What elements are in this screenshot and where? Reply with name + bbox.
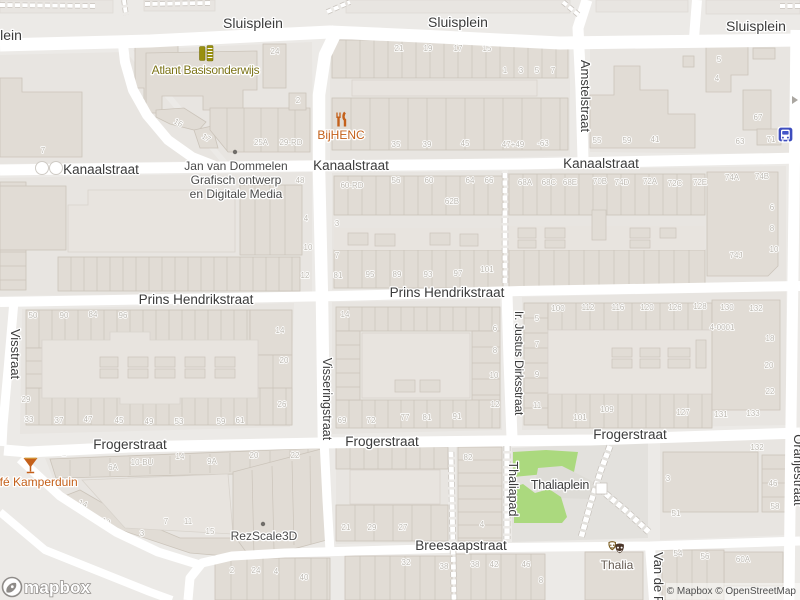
svg-text:7: 7	[41, 146, 46, 155]
svg-text:Visseringstraat: Visseringstraat	[320, 358, 334, 441]
svg-text:101: 101	[573, 413, 587, 422]
svg-text:19: 19	[424, 44, 433, 53]
svg-text:26: 26	[278, 400, 287, 409]
svg-text:BijHENC: BijHENC	[317, 128, 365, 142]
svg-text:71: 71	[767, 135, 776, 144]
svg-text:130: 130	[720, 303, 734, 312]
svg-text:Sluisplein: Sluisplein	[223, 15, 283, 31]
svg-text:47+49: 47+49	[502, 140, 525, 149]
svg-text:59: 59	[623, 136, 632, 145]
svg-text:6A: 6A	[108, 463, 118, 472]
svg-text:68C: 68C	[542, 178, 557, 187]
svg-text:Kanaalstraat: Kanaalstraat	[63, 162, 139, 177]
svg-text:74J: 74J	[730, 251, 743, 260]
svg-text:48: 48	[296, 176, 305, 185]
svg-text:127: 127	[676, 408, 690, 417]
svg-text:32: 32	[402, 558, 411, 567]
svg-text:10: 10	[490, 371, 499, 380]
svg-text:8: 8	[539, 576, 544, 585]
svg-text:133: 133	[746, 409, 760, 418]
svg-text:Thalia: Thalia	[601, 558, 634, 572]
svg-text:22: 22	[766, 387, 775, 396]
svg-text:41: 41	[651, 135, 660, 144]
svg-text:3: 3	[519, 66, 524, 75]
svg-text:mapbox: mapbox	[24, 578, 91, 597]
svg-text:56: 56	[701, 552, 710, 561]
svg-text:Jan van Dommelen: Jan van Dommelen	[184, 159, 287, 173]
svg-text:RezScale3D: RezScale3D	[231, 529, 298, 543]
svg-text:72A: 72A	[643, 177, 658, 186]
svg-text:131: 131	[714, 410, 728, 419]
svg-text:8: 8	[770, 224, 775, 233]
svg-text:82: 82	[464, 453, 473, 462]
svg-text:Sluisplein: Sluisplein	[0, 27, 22, 43]
svg-text:4: 4	[274, 567, 279, 576]
svg-text:66: 66	[485, 176, 494, 185]
svg-text:Prins Hendrikstraat: Prins Hendrikstraat	[139, 292, 254, 307]
svg-text:Kanaalstraat: Kanaalstraat	[563, 156, 639, 171]
svg-text:45: 45	[461, 139, 470, 148]
svg-text:11: 11	[533, 401, 542, 410]
svg-text:24: 24	[271, 47, 280, 56]
svg-text:33: 33	[25, 415, 34, 424]
svg-text:47: 47	[84, 415, 93, 424]
svg-text:3: 3	[140, 529, 145, 538]
svg-text:89: 89	[393, 270, 402, 279]
svg-text:72: 72	[367, 416, 376, 425]
svg-text:20: 20	[280, 356, 289, 365]
svg-text:Sluisplein: Sluisplein	[428, 14, 488, 30]
svg-text:1: 1	[503, 66, 508, 75]
svg-text:12: 12	[491, 400, 500, 409]
svg-text:132: 132	[750, 443, 764, 452]
svg-text:77: 77	[401, 413, 410, 422]
svg-text:7: 7	[551, 66, 556, 75]
svg-text:3: 3	[666, 474, 671, 483]
svg-text:29: 29	[22, 395, 31, 404]
svg-text:74D: 74D	[615, 178, 630, 187]
svg-text:6: 6	[493, 324, 498, 333]
svg-text:132: 132	[749, 304, 763, 313]
svg-text:20: 20	[765, 361, 774, 370]
svg-text:54: 54	[674, 549, 683, 558]
svg-text:29: 29	[368, 523, 377, 532]
svg-text:4: 4	[304, 214, 309, 223]
svg-text:62B: 62B	[445, 197, 459, 206]
svg-text:12: 12	[301, 271, 310, 280]
svg-text:7: 7	[535, 340, 540, 349]
svg-text:53: 53	[175, 417, 184, 426]
svg-text:Grafisch ontwerp: Grafisch ontwerp	[191, 173, 282, 187]
svg-text:Café Kamperduin: Café Kamperduin	[0, 475, 78, 489]
svg-text:-63: -63	[537, 139, 549, 148]
svg-text:21: 21	[395, 44, 404, 53]
svg-text:120: 120	[640, 303, 654, 312]
svg-text:21: 21	[342, 523, 351, 532]
svg-text:68A: 68A	[518, 178, 533, 187]
svg-text:60: 60	[425, 176, 434, 185]
svg-text:Thaliaplein: Thaliaplein	[531, 478, 590, 492]
svg-text:7: 7	[164, 517, 169, 526]
svg-text:17: 17	[454, 44, 463, 53]
svg-text:Breesaapstraat: Breesaapstraat	[415, 538, 507, 553]
svg-text:128: 128	[693, 302, 707, 311]
svg-text:64: 64	[466, 176, 475, 185]
svg-text:81: 81	[334, 271, 343, 280]
svg-text:74B: 74B	[755, 172, 769, 181]
svg-text:20: 20	[250, 451, 259, 460]
svg-text:35: 35	[392, 140, 401, 149]
svg-text:95: 95	[366, 270, 375, 279]
svg-text:Van de Polder: Van de Polder	[651, 552, 666, 600]
svg-text:Ir. Justus Dirksstraat: Ir. Justus Dirksstraat	[512, 311, 526, 416]
svg-text:46: 46	[522, 560, 531, 569]
svg-text:9: 9	[535, 370, 540, 379]
svg-text:50: 50	[29, 311, 38, 320]
svg-text:Visstraat: Visstraat	[8, 329, 23, 380]
svg-text:96: 96	[119, 311, 128, 320]
svg-text:Oranjestraat: Oranjestraat	[791, 434, 800, 506]
svg-text:en Digitale Media: en Digitale Media	[190, 187, 283, 201]
svg-text:Frogerstraat: Frogerstraat	[345, 434, 419, 449]
svg-text:8: 8	[493, 346, 498, 355]
svg-text:39: 39	[423, 140, 432, 149]
svg-text:67: 67	[754, 113, 763, 122]
svg-text:72E: 72E	[693, 178, 707, 187]
svg-text:2: 2	[296, 96, 301, 105]
svg-text:46: 46	[769, 479, 778, 488]
svg-text:93: 93	[424, 270, 433, 279]
svg-text:5: 5	[535, 66, 540, 75]
svg-text:42: 42	[490, 560, 499, 569]
svg-text:Thaliapad: Thaliapad	[506, 462, 520, 517]
svg-text:112: 112	[582, 303, 595, 312]
svg-text:14: 14	[176, 452, 185, 461]
svg-text:72C: 72C	[668, 179, 683, 188]
svg-text:109: 109	[600, 405, 614, 414]
svg-text:69: 69	[338, 416, 347, 425]
svg-text:49: 49	[145, 417, 154, 426]
svg-text:60-RD: 60-RD	[340, 181, 363, 190]
svg-text:4: 4	[480, 520, 485, 529]
svg-text:37: 37	[55, 416, 64, 425]
svg-text:29-RD: 29-RD	[279, 138, 302, 147]
svg-text:Atlant Basisonderwijs: Atlant Basisonderwijs	[152, 63, 260, 77]
svg-text:Frogerstraat: Frogerstraat	[593, 427, 667, 442]
svg-text:7: 7	[335, 251, 340, 260]
svg-text:Kanaalstraat: Kanaalstraat	[313, 158, 389, 173]
svg-text:10: 10	[304, 243, 313, 252]
svg-text:45: 45	[115, 416, 124, 425]
svg-text:22: 22	[291, 451, 300, 460]
svg-text:100: 100	[551, 304, 565, 313]
svg-text:74A: 74A	[725, 173, 740, 182]
svg-text:4-0001: 4-0001	[710, 323, 735, 332]
svg-text:55: 55	[593, 136, 602, 145]
svg-text:51: 51	[672, 509, 681, 518]
svg-text:4: 4	[715, 74, 720, 83]
svg-text:91: 91	[453, 412, 462, 421]
svg-text:© Mapbox © OpenStreetMap: © Mapbox © OpenStreetMap	[667, 586, 797, 597]
svg-text:97: 97	[454, 269, 463, 278]
svg-text:90: 90	[60, 311, 69, 320]
svg-text:Frogerstraat: Frogerstraat	[93, 437, 167, 452]
svg-text:25A: 25A	[254, 138, 269, 147]
svg-text:84: 84	[89, 310, 98, 319]
svg-text:60A: 60A	[736, 555, 751, 564]
svg-text:3: 3	[335, 219, 340, 228]
svg-text:9A: 9A	[207, 457, 217, 466]
svg-text:101: 101	[480, 265, 494, 274]
svg-text:68E: 68E	[563, 178, 577, 187]
svg-text:63: 63	[736, 137, 745, 146]
svg-text:70B: 70B	[593, 177, 607, 186]
svg-text:2: 2	[230, 566, 235, 575]
svg-text:18: 18	[766, 334, 775, 343]
svg-text:5: 5	[717, 55, 722, 64]
svg-text:81: 81	[423, 413, 432, 422]
svg-text:126: 126	[668, 303, 682, 312]
svg-text:27: 27	[399, 523, 408, 532]
svg-text:59: 59	[217, 417, 226, 426]
svg-text:40: 40	[300, 573, 309, 582]
svg-text:Prins Hendrikstraat: Prins Hendrikstraat	[390, 285, 505, 300]
svg-text:Amstelstraat: Amstelstraat	[578, 60, 593, 133]
svg-text:10: 10	[770, 245, 779, 254]
svg-text:14: 14	[341, 310, 350, 319]
svg-text:61: 61	[236, 416, 245, 425]
svg-text:10-BU: 10-BU	[131, 458, 154, 467]
svg-text:38: 38	[440, 562, 449, 571]
svg-text:14: 14	[276, 326, 285, 335]
svg-text:24: 24	[252, 566, 261, 575]
svg-text:5: 5	[535, 314, 540, 323]
svg-text:11: 11	[184, 517, 193, 526]
svg-text:116: 116	[612, 303, 625, 312]
svg-text:6: 6	[770, 203, 775, 212]
svg-text:Sluisplein: Sluisplein	[726, 18, 786, 34]
svg-text:58: 58	[771, 502, 780, 511]
svg-text:56: 56	[392, 176, 401, 185]
svg-text:38: 38	[471, 560, 480, 569]
svg-text:15: 15	[206, 527, 215, 536]
